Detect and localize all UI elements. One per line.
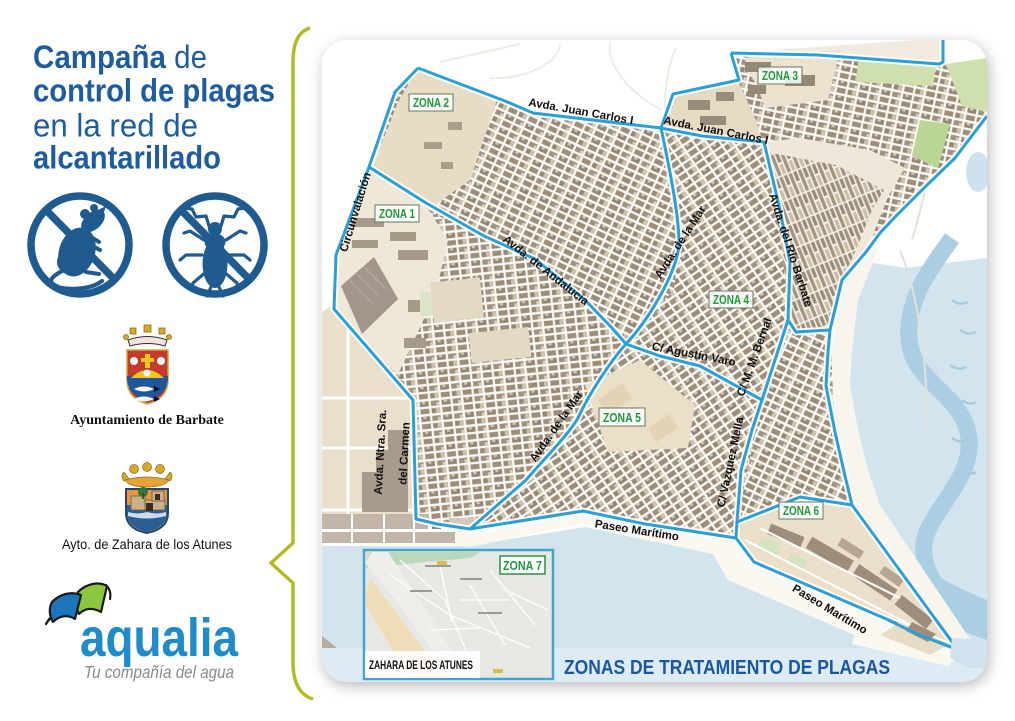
- svg-text:ZAHARA DE LOS ATUNES: ZAHARA DE LOS ATUNES: [369, 658, 473, 672]
- svg-text:ZONA 4: ZONA 4: [713, 292, 750, 307]
- svg-text:ZONA 6: ZONA 6: [783, 503, 819, 518]
- svg-text:Tu compañía del agua: Tu compañía del agua: [84, 662, 234, 682]
- svg-text:ZONA 3: ZONA 3: [762, 68, 798, 83]
- svg-text:ZONA 2: ZONA 2: [413, 95, 449, 110]
- svg-text:ZONA 5: ZONA 5: [603, 410, 641, 425]
- svg-text:Campaña de: Campaña de: [33, 39, 207, 75]
- svg-text:en la red de: en la red de: [33, 108, 198, 144]
- svg-text:alcantarillado: alcantarillado: [33, 140, 221, 176]
- svg-text:aqualia: aqualia: [80, 608, 239, 668]
- svg-text:control de plagas: control de plagas: [33, 73, 275, 109]
- svg-text:ZONA 7: ZONA 7: [503, 558, 542, 573]
- svg-text:Ayto. de Zahara de los Atunes: Ayto. de Zahara de los Atunes: [62, 537, 232, 552]
- svg-text:Ayuntamiento de Barbate: Ayuntamiento de Barbate: [70, 413, 224, 428]
- svg-text:ZONAS DE TRATAMIENTO DE PLAGAS: ZONAS DE TRATAMIENTO DE PLAGAS: [564, 656, 890, 679]
- svg-text:ZONA 1: ZONA 1: [379, 206, 415, 221]
